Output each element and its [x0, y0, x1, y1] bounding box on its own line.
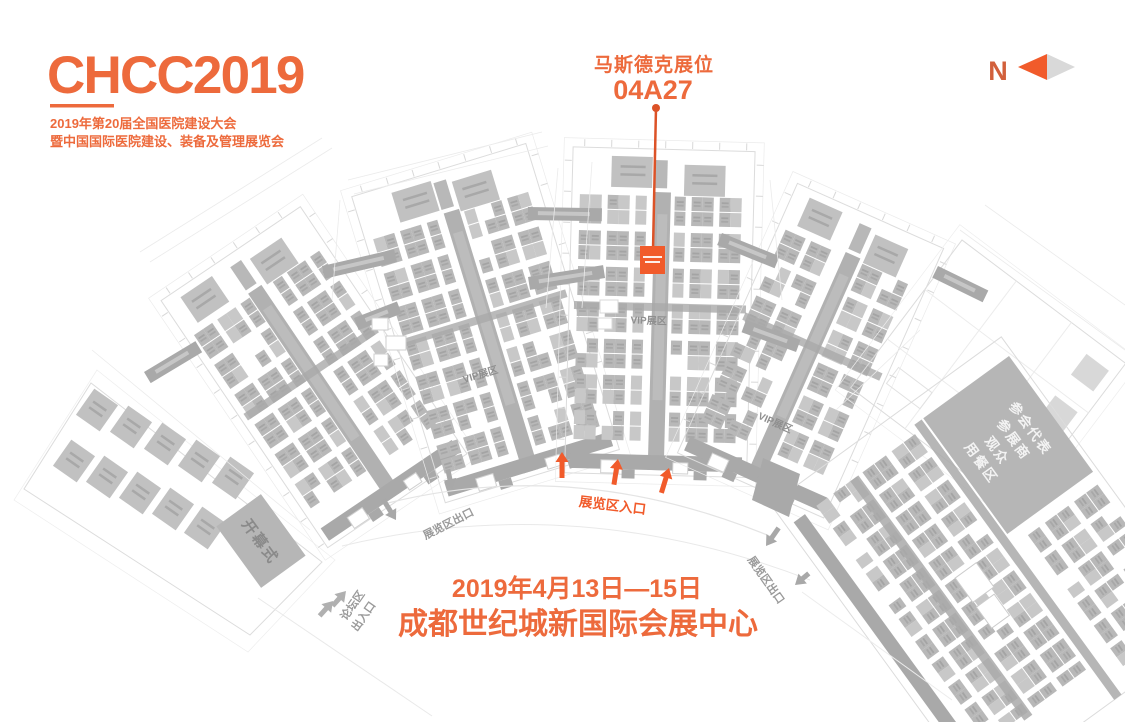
- svg-text:04A27: 04A27: [613, 75, 693, 105]
- svg-text:2019年4月13日—15日: 2019年4月13日—15日: [452, 574, 702, 603]
- svg-text:CHCC2019: CHCC2019: [47, 46, 304, 105]
- svg-text:VIP展区: VIP展区: [630, 314, 666, 327]
- svg-text:暨中国国际医院建设、装备及管理展览会: 暨中国国际医院建设、装备及管理展览会: [50, 134, 285, 149]
- svg-text:成都世纪城新国际会展中心: 成都世纪城新国际会展中心: [398, 608, 758, 641]
- svg-text:N: N: [988, 56, 1008, 86]
- svg-text:马斯德克展位: 马斯德克展位: [594, 53, 714, 76]
- svg-text:2019年第20届全国医院建设大会: 2019年第20届全国医院建设大会: [50, 116, 237, 131]
